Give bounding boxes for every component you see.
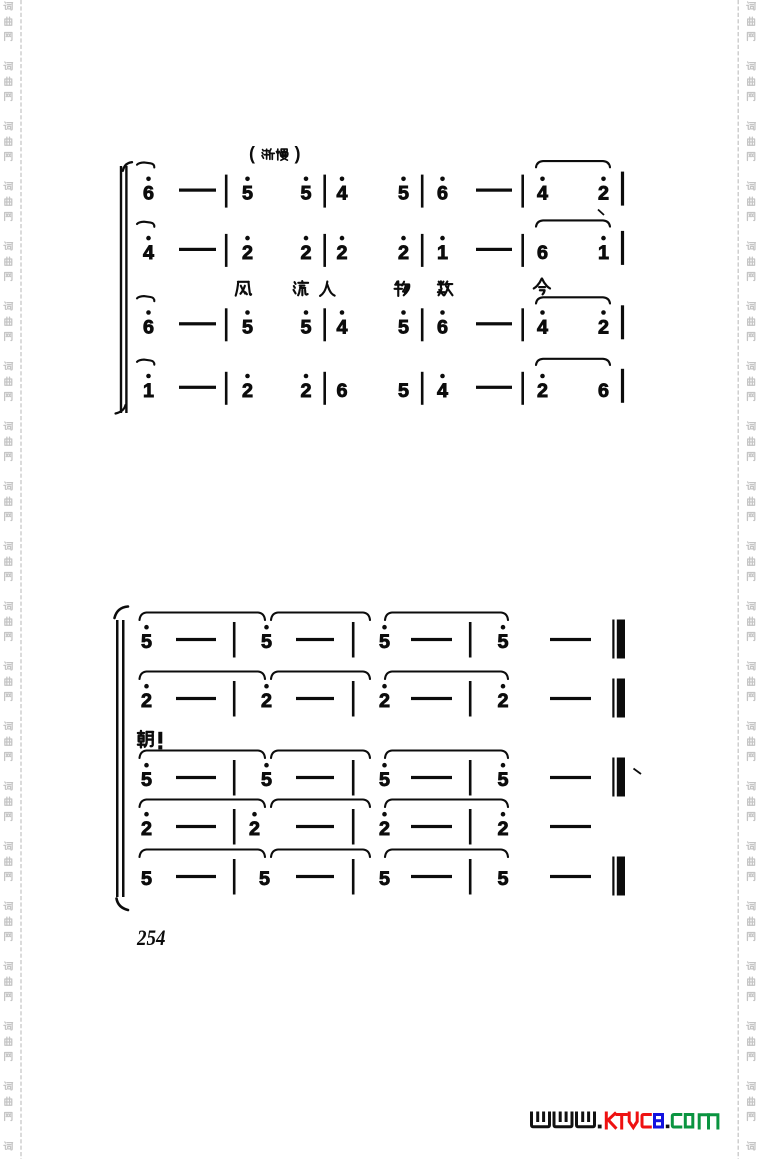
svg-text:5: 5 xyxy=(497,769,508,791)
svg-text:5: 5 xyxy=(398,183,409,205)
svg-text:2: 2 xyxy=(300,380,311,402)
svg-text:5: 5 xyxy=(300,183,311,205)
svg-text:6: 6 xyxy=(537,242,548,264)
svg-text:5: 5 xyxy=(398,380,409,402)
svg-text:254: 254 xyxy=(136,925,165,950)
svg-text:2: 2 xyxy=(497,690,508,712)
svg-text:2: 2 xyxy=(336,242,347,264)
svg-text:5: 5 xyxy=(379,631,390,653)
svg-text:5: 5 xyxy=(261,769,272,791)
svg-text:6: 6 xyxy=(143,316,154,338)
svg-text:4: 4 xyxy=(336,316,347,338)
svg-text:2: 2 xyxy=(398,242,409,264)
svg-text:5: 5 xyxy=(242,316,253,338)
svg-text:5: 5 xyxy=(300,316,311,338)
svg-text:2: 2 xyxy=(249,818,260,840)
svg-text:5: 5 xyxy=(379,868,390,890)
svg-text:5: 5 xyxy=(141,631,152,653)
svg-text:1: 1 xyxy=(598,242,609,264)
svg-text:1: 1 xyxy=(143,380,154,402)
svg-text:6: 6 xyxy=(598,380,609,402)
svg-text:5: 5 xyxy=(497,631,508,653)
svg-text:2: 2 xyxy=(598,316,609,338)
svg-text:4: 4 xyxy=(437,380,448,402)
svg-text:2: 2 xyxy=(141,690,152,712)
svg-text:6: 6 xyxy=(143,183,154,205)
svg-text:): ) xyxy=(295,144,301,164)
svg-text:1: 1 xyxy=(437,242,448,264)
svg-text:2: 2 xyxy=(242,380,253,402)
svg-text:2: 2 xyxy=(497,818,508,840)
svg-text:6: 6 xyxy=(437,183,448,205)
svg-text:4: 4 xyxy=(336,183,347,205)
svg-text:5: 5 xyxy=(141,769,152,791)
svg-text:4: 4 xyxy=(537,183,548,205)
svg-text:4: 4 xyxy=(537,316,548,338)
svg-text:5: 5 xyxy=(261,631,272,653)
svg-text:2: 2 xyxy=(141,818,152,840)
svg-text:2: 2 xyxy=(598,183,609,205)
svg-text:(: ( xyxy=(249,144,255,164)
svg-text:2: 2 xyxy=(242,242,253,264)
svg-text:5: 5 xyxy=(379,769,390,791)
svg-text:5: 5 xyxy=(259,868,270,890)
svg-text:2: 2 xyxy=(300,242,311,264)
svg-text:6: 6 xyxy=(437,316,448,338)
svg-text:2: 2 xyxy=(379,690,390,712)
svg-text:5: 5 xyxy=(497,868,508,890)
svg-text:4: 4 xyxy=(143,242,154,264)
svg-text:2: 2 xyxy=(537,380,548,402)
svg-text:6: 6 xyxy=(336,380,347,402)
svg-text:5: 5 xyxy=(141,868,152,890)
svg-text:5: 5 xyxy=(242,183,253,205)
svg-text:5: 5 xyxy=(398,316,409,338)
svg-text:2: 2 xyxy=(379,818,390,840)
svg-text:2: 2 xyxy=(261,690,272,712)
